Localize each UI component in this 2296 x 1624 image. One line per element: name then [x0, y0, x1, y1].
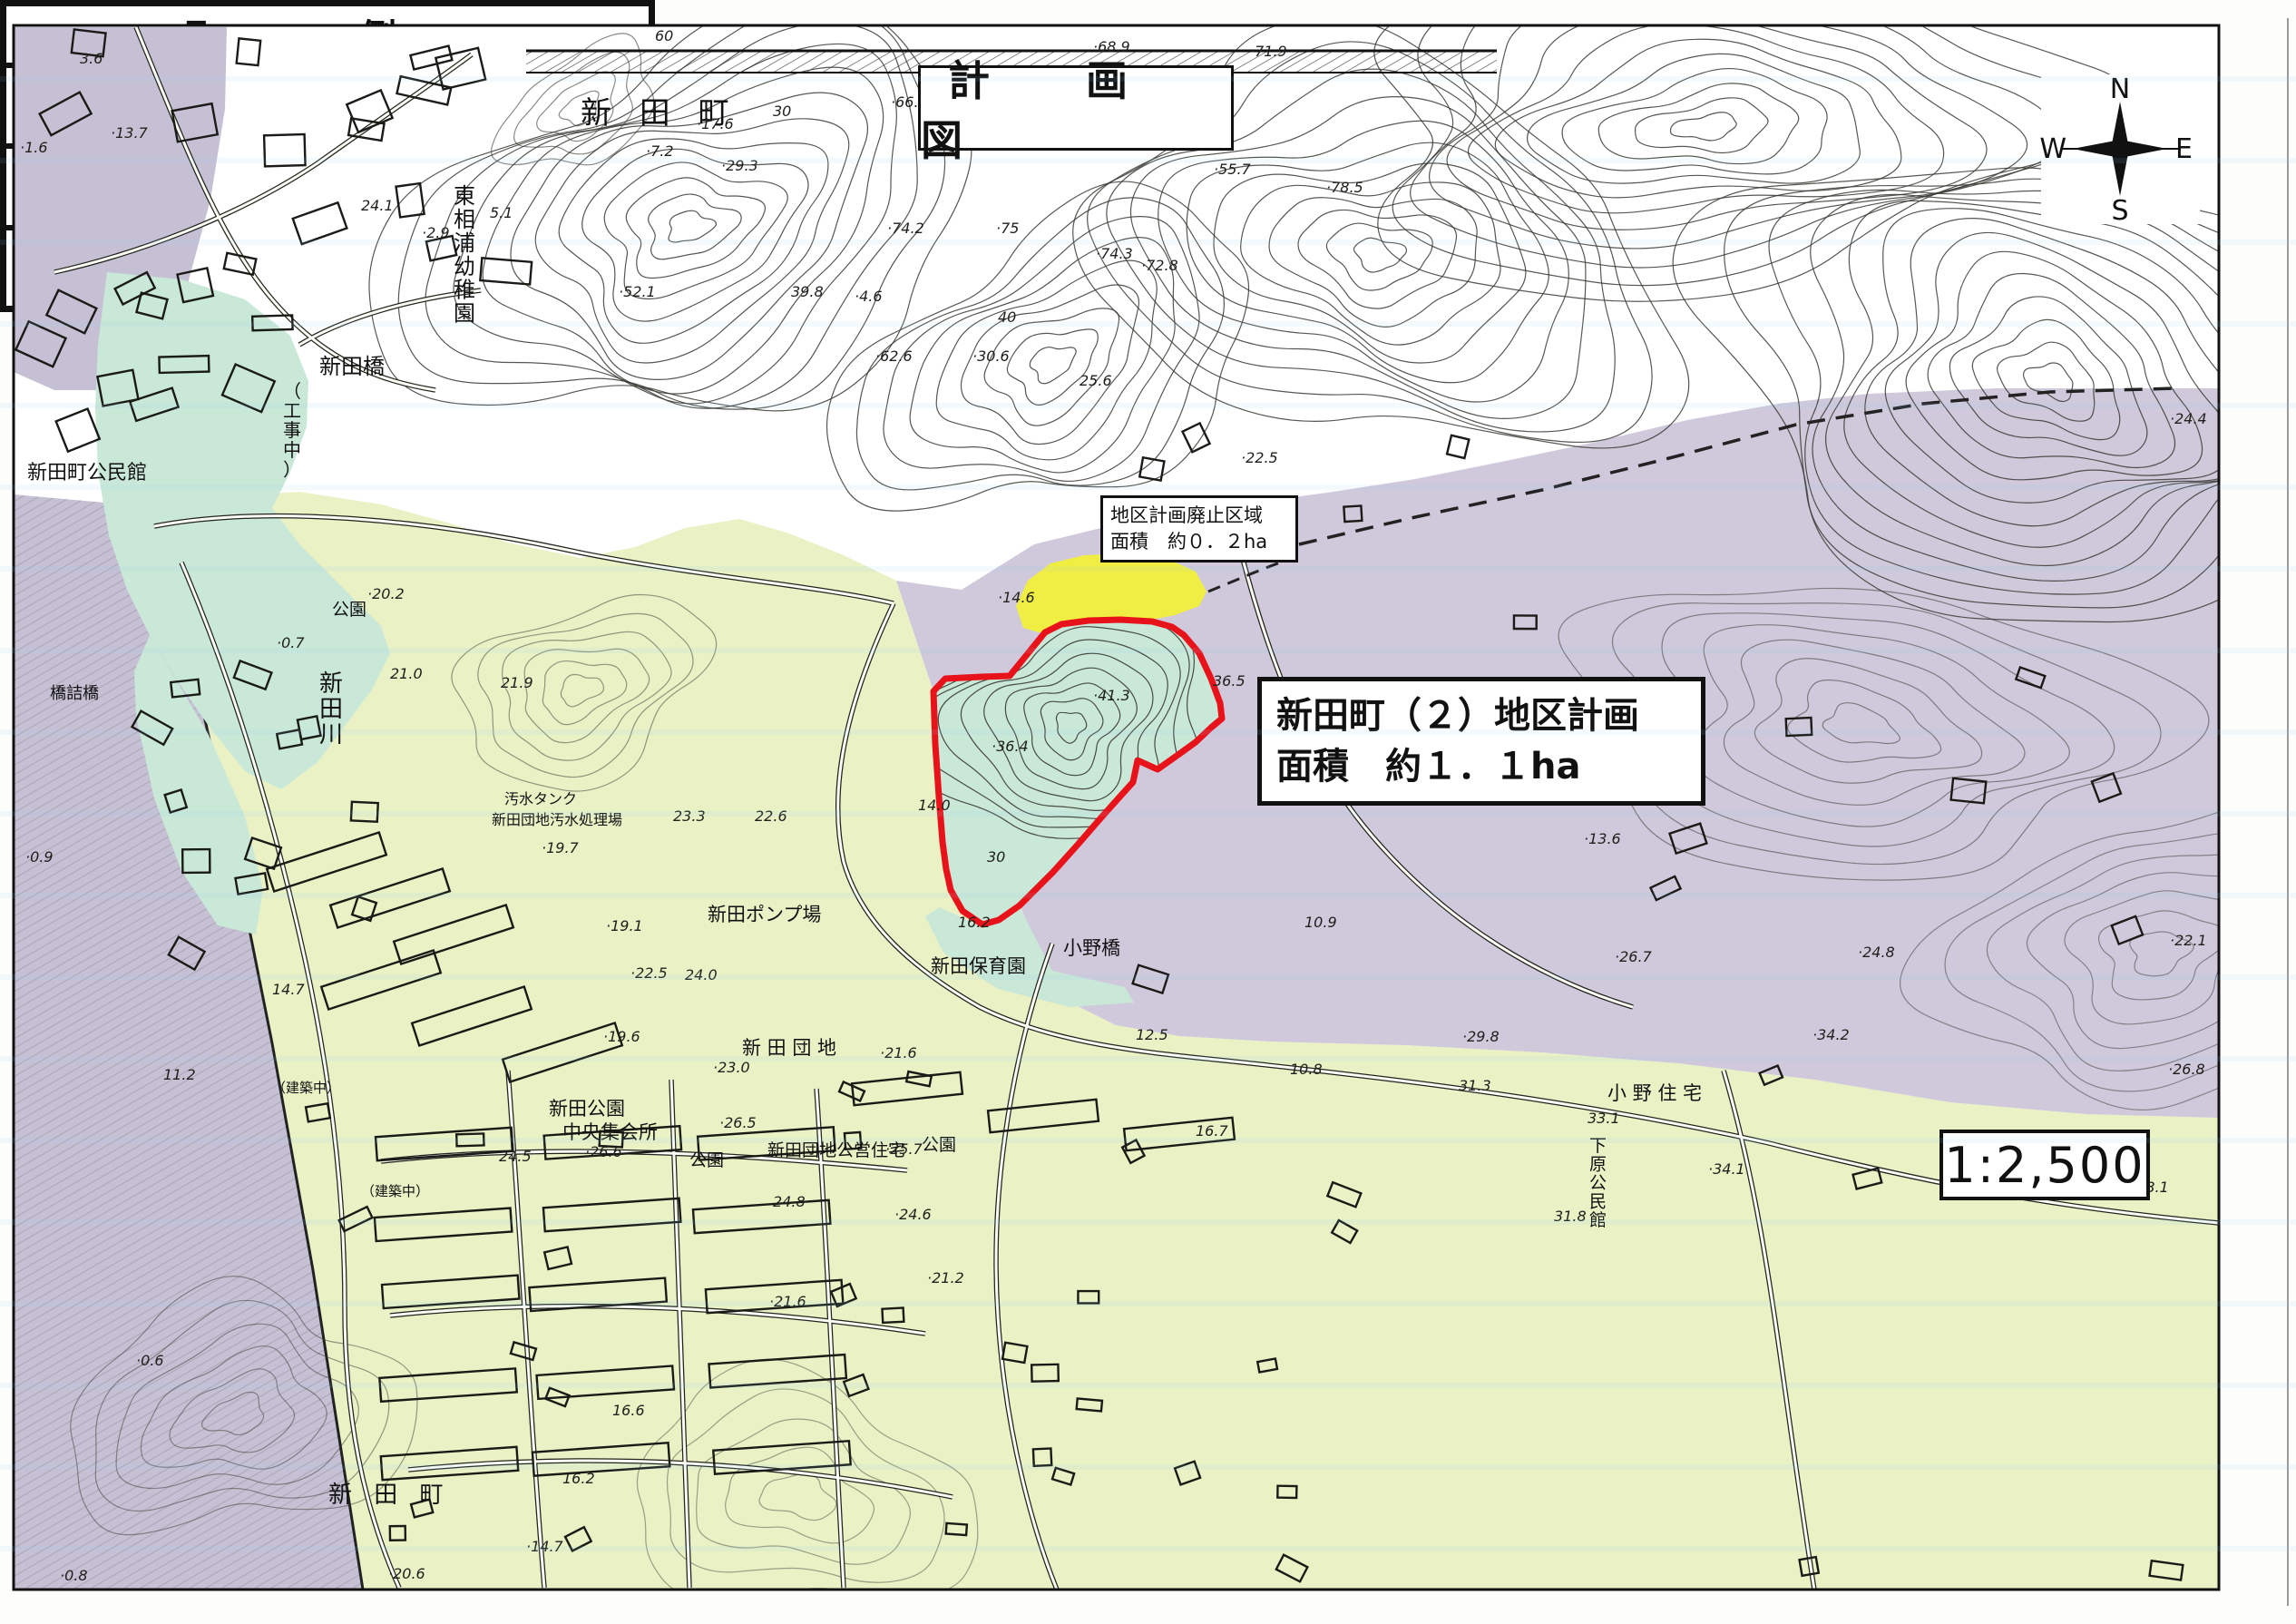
title-box: 計 画 図	[918, 65, 1234, 151]
map-label: 新田川	[319, 670, 343, 748]
spot-elevation: ·24.4	[2170, 410, 2207, 427]
spot-elevation: 14.0	[918, 797, 951, 814]
compass-south-label: S	[2111, 195, 2128, 227]
map-label: 小 野 住 宅	[1607, 1082, 1702, 1104]
spot-elevation: 31.8	[1554, 1208, 1587, 1225]
spot-elevation: ·17.6	[697, 115, 734, 132]
spot-elevation: ·20.6	[388, 1565, 425, 1582]
spot-elevation: 24.1	[361, 197, 394, 214]
spot-elevation: 23.3	[673, 807, 706, 825]
map-label: 下原公民館	[1589, 1136, 1607, 1230]
spot-elevation: ·7.2	[646, 142, 674, 160]
map-label: 新田団地汚水処理場	[492, 811, 622, 828]
map-label: 橋詰橋	[50, 684, 99, 703]
page-title: 計 画 図	[921, 48, 1231, 168]
map-label: 公園	[332, 600, 366, 620]
spot-elevation: ·52.1	[619, 283, 656, 300]
map-label: 新田公園	[549, 1098, 625, 1120]
spot-elevation: ·14.7	[526, 1538, 564, 1555]
spot-elevation: 24.5	[499, 1148, 532, 1165]
spot-elevation: 16.6	[612, 1402, 645, 1419]
spot-elevation: ·29.8	[1462, 1028, 1500, 1045]
spot-elevation: ·13.6	[1584, 830, 1621, 847]
map-label: 新田ポンプ場	[708, 904, 821, 925]
spot-elevation: ·19.1	[606, 917, 643, 934]
map-label: 新田町公民館	[27, 462, 147, 484]
spot-elevation: ·21.6	[880, 1044, 917, 1061]
spot-elevation: ·22.5	[630, 964, 668, 982]
spot-elevation: 33.1	[1588, 1110, 1620, 1127]
spot-elevation: ·34.2	[1812, 1026, 1850, 1043]
spot-elevation: ·0.9	[25, 848, 54, 866]
spot-elevation: ·22.5	[1241, 449, 1278, 466]
spot-elevation: 5.1	[490, 204, 513, 221]
spot-elevation: 12.5	[1136, 1026, 1168, 1043]
spot-elevation: 24.0	[685, 966, 718, 983]
spot-elevation: 16.2	[958, 914, 991, 931]
spot-elevation: 10.9	[1304, 914, 1337, 931]
spot-elevation: 22.6	[755, 807, 787, 825]
spot-elevation: 60	[655, 27, 673, 44]
spot-elevation: 3.6	[80, 50, 103, 67]
map-canvas: 新 田 町東相浦幼稚園新田橋新田町公民館（工事中）新田川汚水タンク新田団地汚水処…	[0, 0, 2296, 1624]
spot-elevation: ·14.6	[998, 589, 1035, 606]
spot-elevation: ·24.8	[1858, 944, 1895, 961]
spot-elevation: ·29.3	[721, 157, 758, 174]
spot-elevation: ·0.8	[60, 1567, 88, 1584]
spot-elevation: ·26.6	[585, 1143, 622, 1160]
map-label: （建築中）	[361, 1183, 429, 1199]
callout-district-plan: 新田町（２）地区計画 面積 約１．１ha	[1257, 677, 1705, 806]
map-label: 新田保育園	[931, 955, 1026, 977]
spot-elevation: ·19.6	[603, 1028, 640, 1045]
spot-elevation: ·30.6	[972, 347, 1010, 365]
map-label: 公園	[689, 1150, 724, 1170]
spot-elevation: 30	[773, 103, 791, 120]
map-label: （建築中）	[272, 1080, 340, 1096]
spot-elevation: 30	[987, 848, 1005, 866]
callout-abolished-line1: 地区計画廃止区域	[1110, 503, 1288, 529]
spot-elevation: 21.0	[390, 665, 423, 682]
spot-elevation: ·0.6	[136, 1352, 164, 1369]
spot-elevation: ·62.6	[875, 347, 913, 365]
spot-elevation: ·74.3	[1096, 245, 1133, 262]
spot-elevation: ·21.6	[769, 1293, 806, 1310]
compass-east-label: E	[2175, 133, 2193, 165]
map-label: 新 田 団 地	[742, 1037, 836, 1059]
spot-elevation: 11.2	[163, 1066, 196, 1083]
spot-elevation: 16.7	[1196, 1122, 1228, 1140]
spot-elevation: 36.5	[1213, 672, 1246, 690]
spot-elevation: ·71.9	[1250, 43, 1287, 60]
spot-elevation: ·24.6	[894, 1206, 932, 1223]
spot-elevation: 40	[998, 308, 1016, 326]
spot-elevation: ·22.1	[2170, 932, 2207, 949]
spot-elevation: ·1.6	[20, 139, 48, 156]
callout-abolished-area: 地区計画廃止区域 面積 約０．２ha	[1100, 495, 1298, 563]
scale-box: 1:2,500	[1939, 1130, 2150, 1200]
map-label: 新 田 町	[328, 1482, 451, 1509]
map-label: 小野橋	[1063, 937, 1120, 959]
spot-elevation: ·2.9	[422, 224, 450, 241]
spot-elevation: ·25.7	[885, 1140, 923, 1158]
spot-elevation: 14.7	[272, 981, 305, 998]
map-label: 中央集会所	[562, 1121, 658, 1143]
compass-north-label: N	[2110, 73, 2130, 105]
plan-map-page: 新 田 町東相浦幼稚園新田橋新田町公民館（工事中）新田川汚水タンク新田団地汚水処…	[0, 0, 2296, 1624]
spot-elevation: 21.9	[501, 674, 533, 691]
spot-elevation: ·26.7	[1615, 948, 1653, 965]
spot-elevation: ·41.3	[1093, 687, 1130, 704]
spot-elevation: ·75	[996, 220, 1019, 237]
spot-elevation: ·13.7	[111, 124, 149, 142]
spot-elevation: ·78.5	[1326, 179, 1363, 196]
spot-elevation: 24.8	[773, 1193, 806, 1210]
spot-elevation: ·4.6	[855, 288, 883, 305]
callout-plan-line1: 新田町（２）地区計画	[1276, 690, 1686, 741]
spot-elevation: ·20.2	[367, 585, 405, 602]
spot-elevation: ·0.7	[277, 634, 305, 651]
spot-elevation: ·26.8	[2168, 1061, 2205, 1078]
map-label: 新田橋	[319, 354, 385, 379]
callout-abolished-line2: 面積 約０．２ha	[1110, 529, 1288, 555]
map-label: 汚水タンク	[504, 790, 577, 807]
callout-plan-line2: 面積 約１．１ha	[1276, 741, 1686, 792]
scale-value: 1:2,500	[1944, 1137, 2145, 1194]
map-label: 東相浦幼稚園	[454, 183, 475, 327]
spot-elevation: 25.6	[1080, 372, 1112, 389]
spot-elevation: 10.8	[1290, 1061, 1323, 1078]
spot-elevation: 16.2	[562, 1470, 595, 1487]
spot-elevation: 31.3	[1459, 1077, 1491, 1094]
spot-elevation: ·74.2	[887, 220, 924, 237]
spot-elevation: ·21.2	[927, 1269, 964, 1286]
spot-elevation: ·26.5	[719, 1114, 757, 1131]
spot-elevation: ·72.8	[1141, 257, 1178, 274]
compass-rose: N S W E	[2039, 73, 2200, 227]
spot-elevation: ·36.4	[992, 738, 1029, 755]
compass-west-label: W	[2039, 133, 2066, 165]
map-label: 公園	[922, 1135, 956, 1155]
map-label: （工事中）	[283, 380, 301, 480]
spot-elevation: ·23.0	[713, 1059, 750, 1076]
spot-elevation: ·34.1	[1708, 1160, 1745, 1178]
spot-elevation: ·19.7	[542, 839, 580, 856]
spot-elevation: 39.8	[791, 283, 824, 300]
